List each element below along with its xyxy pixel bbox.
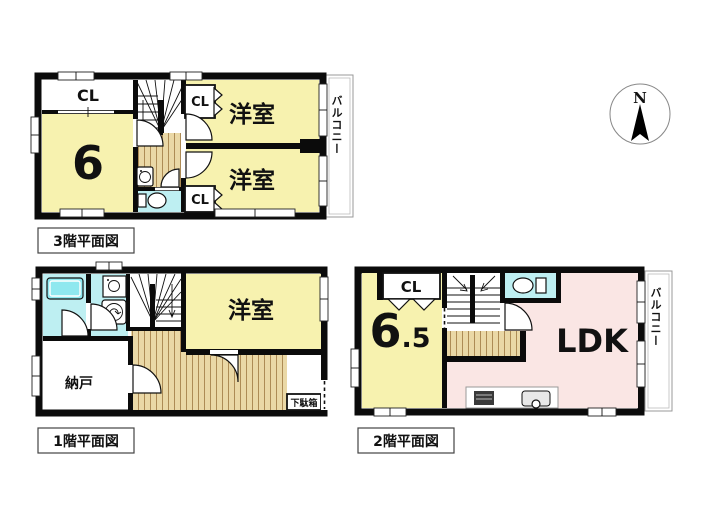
wall: [186, 349, 321, 355]
caption-1f: 1階平面図: [53, 433, 119, 450]
wall: [500, 298, 561, 303]
door-gap: [181, 114, 186, 178]
wall: [300, 139, 326, 153]
storage-room-label: 納戸: [65, 375, 93, 392]
floor-plan-1f: 洋室 納戸 下駄箱 1階平面図: [32, 262, 328, 453]
shoe-cabinet-label: 下駄箱: [290, 397, 317, 409]
balcony-3f-label-holder: バルコニー: [331, 95, 349, 203]
closet-right-bottom-label: CL: [191, 193, 209, 208]
sink-icon: [137, 167, 153, 186]
closet-top-left-label: CL: [77, 86, 99, 105]
room-6-label: 6: [72, 136, 104, 190]
sliding-door-gap: [58, 111, 114, 113]
stove-icon: [474, 391, 494, 405]
balcony-2f-label-holder: バルコニー: [650, 287, 668, 395]
caption-2f: 2階平面図: [373, 433, 439, 450]
toilet-icon: [138, 193, 166, 208]
compass: N: [610, 84, 670, 144]
wall: [181, 273, 186, 352]
stair-landing-wood: [447, 331, 520, 356]
wall: [442, 273, 447, 408]
balcony-2f-label: バルコニー: [650, 287, 661, 347]
wall: [183, 143, 319, 149]
wall: [556, 273, 561, 303]
kitchen-sink-icon: [522, 391, 550, 408]
door-gap: [210, 350, 238, 354]
western-room-1f-label: 洋室: [228, 297, 274, 324]
door-gap: [86, 303, 91, 329]
door-gap: [128, 365, 133, 393]
balcony-3f-label: バルコニー: [331, 95, 342, 155]
closet-2f-label: CL: [401, 278, 422, 296]
stairs-1f: [128, 274, 183, 327]
floor-plan-3f: バルコニー: [31, 72, 353, 253]
door-gap: [155, 188, 179, 191]
stairs-2f: [447, 273, 500, 330]
compass-north-label: N: [633, 89, 647, 107]
toilet-icon-2f: [513, 278, 546, 293]
closet-right-top-label: CL: [191, 95, 209, 110]
floorplan-sheet: バルコニー: [0, 0, 705, 525]
wall: [126, 327, 183, 331]
wall: [443, 356, 526, 362]
ldk-label: LDK: [556, 322, 629, 360]
western-room-bottom-label: 洋室: [229, 167, 275, 194]
caption-3f: 3階平面図: [53, 233, 119, 250]
bathtub-icon: [47, 278, 83, 299]
washbasin-icon: [103, 276, 126, 297]
western-room-top-label: 洋室: [229, 101, 275, 128]
wall: [43, 336, 128, 341]
floorplan-drawing: バルコニー: [0, 0, 705, 525]
kitchen-counter: [466, 387, 558, 408]
floor-plan-2f: バルコニー: [351, 270, 672, 453]
